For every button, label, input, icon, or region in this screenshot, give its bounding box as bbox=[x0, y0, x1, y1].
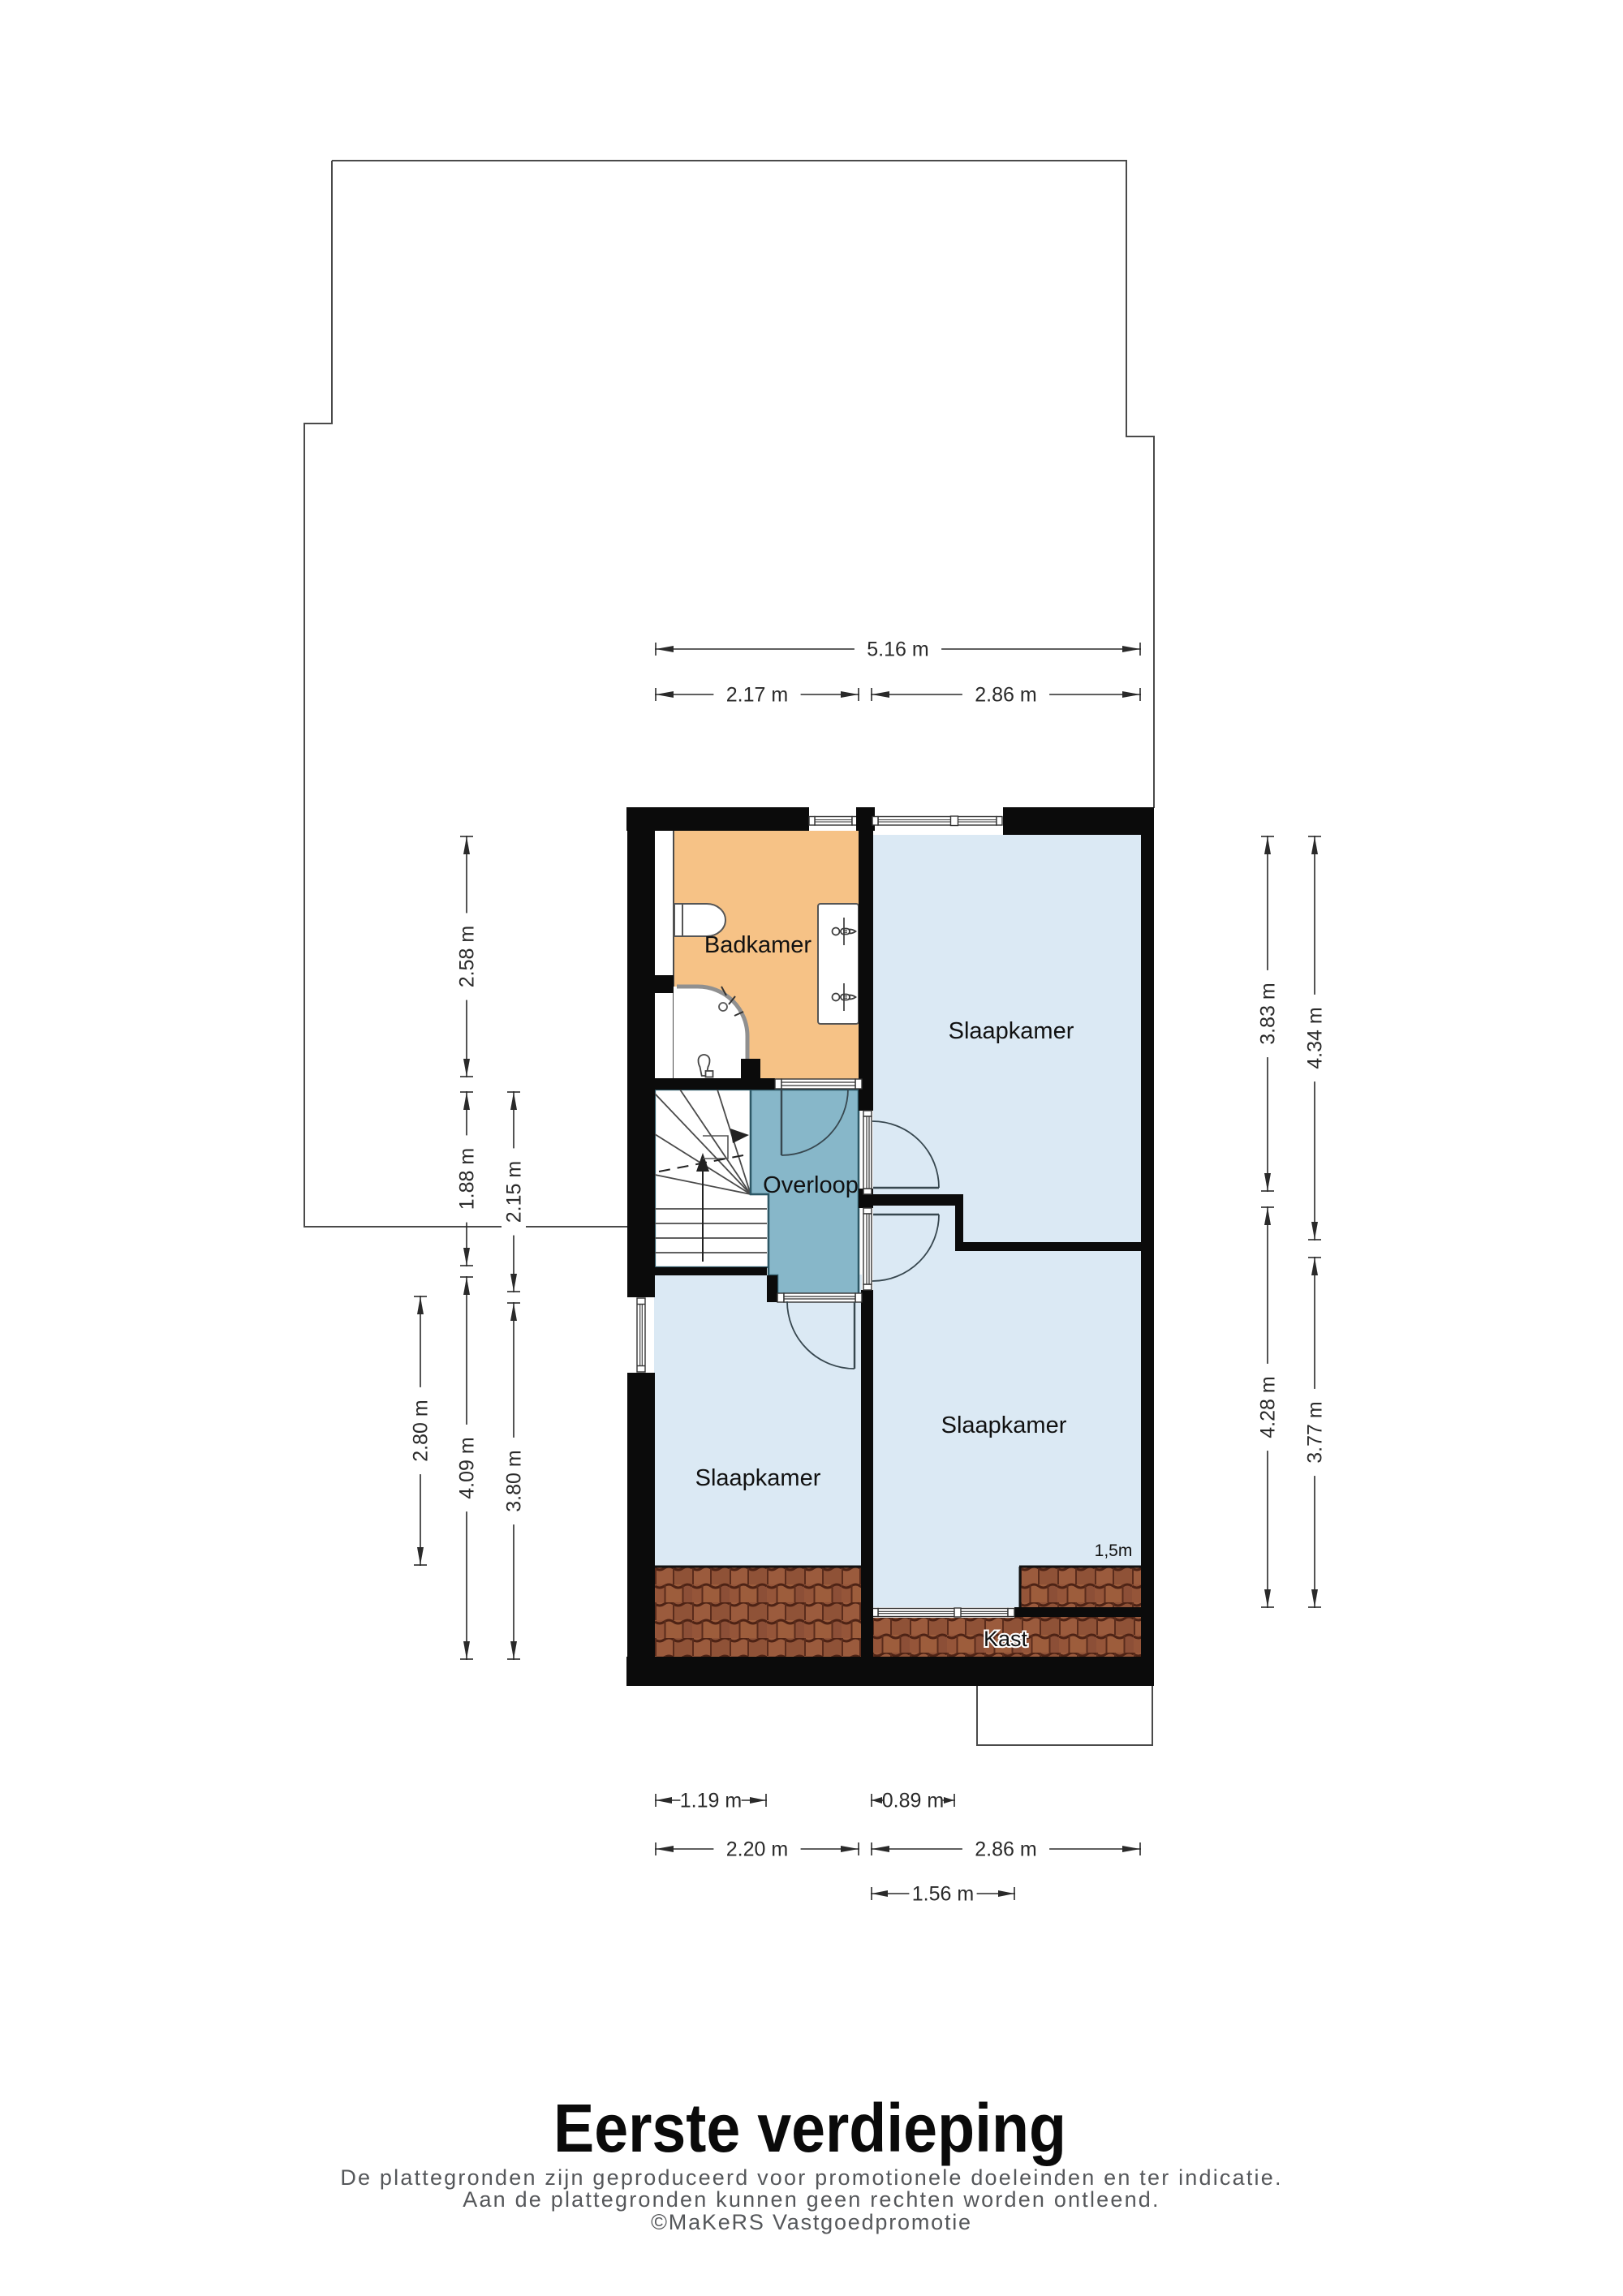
svg-text:Slaapkamer: Slaapkamer bbox=[941, 1412, 1067, 1438]
svg-text:2.86 m: 2.86 m bbox=[975, 1838, 1036, 1861]
svg-text:©MaKeRS Vastgoedpromotie: ©MaKeRS Vastgoedpromotie bbox=[651, 2210, 972, 2234]
svg-text:3.80 m: 3.80 m bbox=[503, 1450, 526, 1511]
svg-text:Kast: Kast bbox=[984, 1627, 1028, 1651]
svg-text:1.19 m: 1.19 m bbox=[680, 1790, 742, 1812]
svg-text:4.28 m: 4.28 m bbox=[1257, 1376, 1280, 1438]
svg-text:3.83 m: 3.83 m bbox=[1257, 982, 1280, 1044]
svg-text:Overloop: Overloop bbox=[763, 1172, 859, 1198]
svg-text:De plattegronden zijn geproduc: De plattegronden zijn geproduceerd voor … bbox=[340, 2165, 1282, 2190]
svg-text:2.58 m: 2.58 m bbox=[456, 926, 479, 987]
svg-text:0.89 m: 0.89 m bbox=[882, 1790, 944, 1812]
svg-text:4.34 m: 4.34 m bbox=[1304, 1007, 1327, 1068]
svg-text:2.80 m: 2.80 m bbox=[410, 1400, 433, 1461]
svg-text:2.17 m: 2.17 m bbox=[726, 684, 788, 707]
svg-text:2.15 m: 2.15 m bbox=[503, 1161, 526, 1223]
svg-text:2.20 m: 2.20 m bbox=[726, 1838, 788, 1861]
svg-text:1,5m: 1,5m bbox=[1095, 1541, 1133, 1560]
svg-text:Slaapkamer: Slaapkamer bbox=[695, 1465, 821, 1491]
svg-text:Slaapkamer: Slaapkamer bbox=[949, 1018, 1074, 1044]
svg-text:4.09 m: 4.09 m bbox=[456, 1437, 479, 1498]
svg-text:3.77 m: 3.77 m bbox=[1304, 1401, 1327, 1463]
svg-text:1.56 m: 1.56 m bbox=[912, 1883, 974, 1906]
svg-text:Eerste verdieping: Eerste verdieping bbox=[553, 2090, 1066, 2166]
svg-text:Badkamer: Badkamer bbox=[704, 932, 812, 958]
svg-text:1.88 m: 1.88 m bbox=[456, 1148, 479, 1210]
svg-text:2.86 m: 2.86 m bbox=[975, 684, 1036, 707]
svg-text:Aan de plattegronden kunnen ge: Aan de plattegronden kunnen geen rechten… bbox=[463, 2187, 1160, 2212]
svg-text:5.16 m: 5.16 m bbox=[867, 638, 928, 661]
